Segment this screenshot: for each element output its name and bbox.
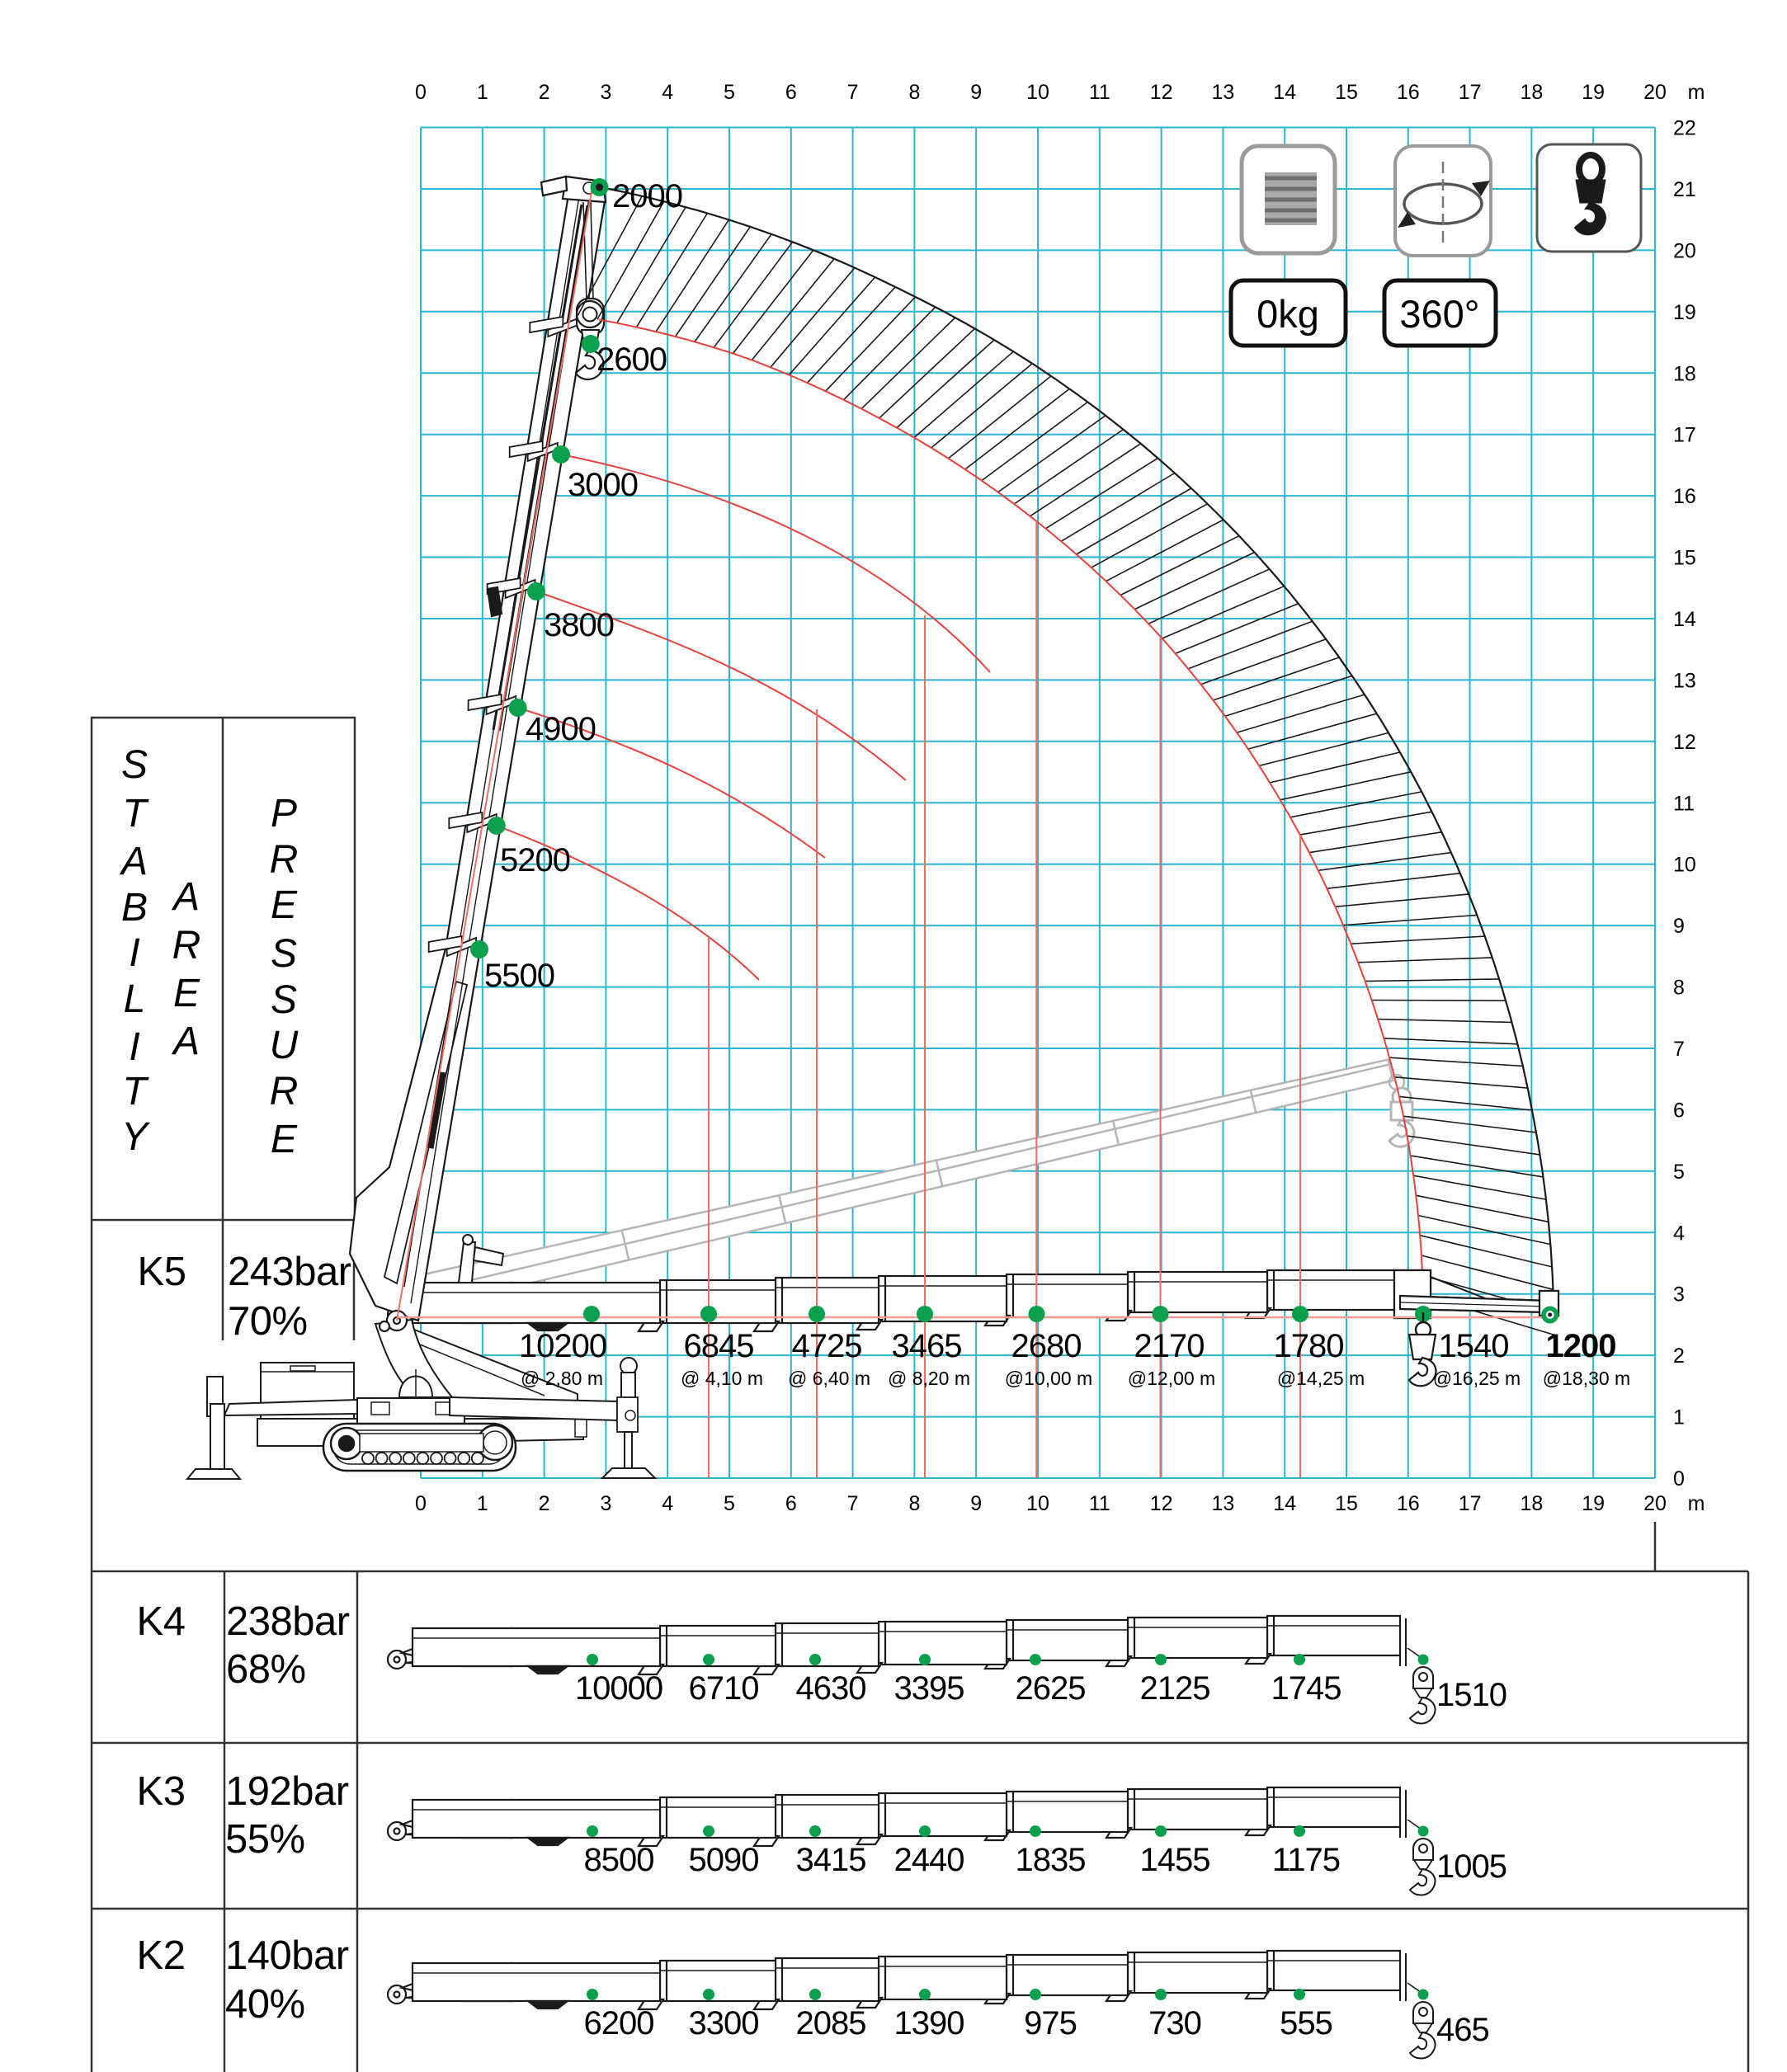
svg-text:4725: 4725 — [792, 1328, 862, 1364]
svg-text:0kg: 0kg — [1257, 292, 1319, 336]
svg-text:P: P — [271, 792, 297, 836]
svg-text:1390: 1390 — [894, 2005, 964, 2041]
svg-text:1: 1 — [1673, 1406, 1685, 1429]
svg-text:3800: 3800 — [544, 607, 614, 643]
svg-text:12: 12 — [1150, 81, 1173, 104]
svg-text:19: 19 — [1673, 301, 1696, 324]
svg-text:1: 1 — [477, 1492, 488, 1515]
svg-text:555: 555 — [1280, 2005, 1332, 2041]
svg-text:S: S — [271, 932, 297, 976]
svg-text:E: E — [271, 883, 298, 927]
svg-text:20: 20 — [1643, 1492, 1667, 1515]
svg-text:13: 13 — [1211, 81, 1234, 104]
svg-text:2600: 2600 — [596, 341, 667, 378]
svg-text:5: 5 — [724, 1492, 735, 1515]
svg-text:6: 6 — [1673, 1099, 1685, 1122]
svg-text:1540: 1540 — [1439, 1328, 1509, 1364]
svg-text:16: 16 — [1397, 1492, 1420, 1515]
svg-text:9: 9 — [1673, 915, 1685, 938]
svg-text:11: 11 — [1673, 792, 1695, 815]
svg-text:17: 17 — [1459, 81, 1482, 104]
svg-text:5500: 5500 — [484, 958, 554, 994]
svg-text:@14,25 m: @14,25 m — [1277, 1368, 1365, 1389]
svg-text:U: U — [270, 1024, 299, 1067]
svg-text:A: A — [171, 1020, 200, 1063]
svg-text:I: I — [129, 1025, 139, 1069]
svg-text:E: E — [271, 1118, 298, 1161]
svg-text:@ 2,80 m: @ 2,80 m — [521, 1368, 603, 1389]
svg-text:19: 19 — [1582, 1492, 1605, 1515]
svg-text:K5: K5 — [138, 1250, 186, 1294]
svg-text:15: 15 — [1673, 547, 1696, 570]
svg-text:7: 7 — [1673, 1038, 1685, 1061]
svg-text:4: 4 — [1673, 1222, 1685, 1245]
svg-text:12: 12 — [1150, 1492, 1173, 1515]
svg-text:3: 3 — [1673, 1283, 1685, 1307]
svg-text:238bar: 238bar — [226, 1599, 350, 1644]
svg-text:8: 8 — [1673, 977, 1685, 1000]
svg-text:15: 15 — [1335, 1492, 1358, 1515]
svg-text:6845: 6845 — [684, 1328, 754, 1364]
svg-text:E: E — [173, 972, 200, 1015]
svg-text:12: 12 — [1673, 731, 1696, 754]
svg-text:5090: 5090 — [689, 1842, 759, 1878]
svg-text:10200: 10200 — [519, 1328, 606, 1364]
svg-text:243bar: 243bar — [228, 1250, 351, 1294]
svg-text:6200: 6200 — [584, 2005, 654, 2041]
svg-text:@ 8,20 m: @ 8,20 m — [888, 1368, 970, 1389]
svg-text:1835: 1835 — [1016, 1842, 1086, 1878]
svg-text:S: S — [271, 978, 297, 1022]
svg-text:0: 0 — [415, 81, 427, 104]
svg-text:1510: 1510 — [1436, 1677, 1506, 1713]
svg-text:L: L — [124, 977, 146, 1021]
svg-text:13: 13 — [1673, 669, 1696, 692]
svg-text:m: m — [1688, 81, 1705, 104]
svg-text:4: 4 — [662, 81, 673, 104]
svg-text:@18,30 m: @18,30 m — [1543, 1368, 1630, 1389]
svg-text:2625: 2625 — [1016, 1670, 1086, 1707]
svg-text:A: A — [119, 840, 148, 883]
svg-text:8500: 8500 — [584, 1842, 654, 1878]
svg-text:4: 4 — [662, 1492, 673, 1515]
svg-text:55%: 55% — [225, 1817, 305, 1862]
svg-text:13: 13 — [1211, 1492, 1234, 1515]
svg-text:2125: 2125 — [1140, 1670, 1210, 1707]
svg-text:16: 16 — [1397, 81, 1420, 104]
svg-text:3465: 3465 — [892, 1328, 962, 1364]
svg-text:10: 10 — [1673, 854, 1696, 877]
svg-text:K4: K4 — [137, 1599, 186, 1644]
svg-text:1780: 1780 — [1274, 1328, 1344, 1364]
svg-text:4900: 4900 — [526, 711, 596, 747]
svg-text:8: 8 — [908, 1492, 920, 1515]
svg-text:10: 10 — [1026, 81, 1049, 104]
svg-text:22: 22 — [1673, 117, 1696, 140]
svg-text:R: R — [270, 1070, 299, 1114]
svg-text:2000: 2000 — [612, 178, 682, 214]
svg-text:730: 730 — [1148, 2005, 1201, 2041]
svg-text:5: 5 — [1673, 1161, 1685, 1184]
svg-text:3000: 3000 — [568, 467, 638, 503]
svg-text:15: 15 — [1335, 81, 1358, 104]
svg-text:2: 2 — [539, 81, 550, 104]
svg-text:3415: 3415 — [796, 1842, 866, 1878]
svg-text:R: R — [172, 924, 201, 968]
svg-text:1455: 1455 — [1140, 1842, 1210, 1878]
svg-text:I: I — [129, 931, 139, 975]
svg-text:3: 3 — [600, 81, 611, 104]
svg-text:7: 7 — [847, 1492, 859, 1515]
svg-text:A: A — [171, 875, 200, 919]
svg-text:3: 3 — [600, 1492, 611, 1515]
svg-text:18: 18 — [1520, 81, 1543, 104]
svg-text:2: 2 — [539, 1492, 550, 1515]
svg-text:20: 20 — [1673, 239, 1696, 262]
svg-text:9: 9 — [970, 81, 982, 104]
svg-text:m: m — [1688, 1492, 1705, 1515]
svg-text:11: 11 — [1089, 81, 1110, 104]
svg-text:975: 975 — [1024, 2005, 1077, 2041]
svg-text:Y: Y — [121, 1115, 150, 1159]
svg-text:2680: 2680 — [1011, 1328, 1082, 1364]
svg-text:1175: 1175 — [1272, 1842, 1340, 1878]
svg-text:S: S — [121, 743, 148, 787]
svg-text:6710: 6710 — [689, 1670, 759, 1707]
svg-text:3395: 3395 — [894, 1670, 964, 1707]
svg-text:1200: 1200 — [1546, 1328, 1616, 1364]
svg-text:@12,00 m: @12,00 m — [1128, 1368, 1215, 1389]
svg-text:7: 7 — [847, 81, 859, 104]
svg-text:18: 18 — [1673, 362, 1696, 385]
svg-text:14: 14 — [1273, 1492, 1296, 1515]
svg-text:1005: 1005 — [1436, 1848, 1506, 1885]
svg-text:R: R — [270, 838, 299, 882]
svg-text:17: 17 — [1673, 424, 1696, 447]
svg-text:9: 9 — [970, 1492, 982, 1515]
svg-text:20: 20 — [1643, 81, 1667, 104]
svg-text:16: 16 — [1673, 485, 1696, 508]
svg-text:40%: 40% — [225, 1982, 305, 2027]
svg-text:18: 18 — [1520, 1492, 1543, 1515]
svg-text:0: 0 — [1673, 1467, 1685, 1490]
svg-text:T: T — [122, 1070, 149, 1114]
svg-text:1745: 1745 — [1271, 1670, 1341, 1707]
svg-text:B: B — [121, 886, 148, 930]
svg-text:K3: K3 — [137, 1769, 186, 1814]
svg-text:0: 0 — [415, 1492, 427, 1515]
svg-text:T: T — [122, 792, 149, 836]
svg-text:360°: 360° — [1399, 292, 1479, 336]
svg-text:@16,25 m: @16,25 m — [1433, 1368, 1521, 1389]
svg-text:6: 6 — [785, 81, 797, 104]
svg-text:8: 8 — [908, 81, 920, 104]
svg-text:K2: K2 — [137, 1933, 186, 1978]
svg-text:@ 6,40 m: @ 6,40 m — [788, 1368, 870, 1389]
svg-text:14: 14 — [1673, 608, 1696, 631]
svg-text:11: 11 — [1089, 1492, 1110, 1515]
svg-text:10: 10 — [1026, 1492, 1049, 1515]
svg-text:19: 19 — [1582, 81, 1605, 104]
svg-text:5: 5 — [724, 81, 735, 104]
svg-text:192bar: 192bar — [225, 1769, 349, 1814]
svg-text:5200: 5200 — [500, 842, 570, 878]
svg-text:@ 4,10 m: @ 4,10 m — [681, 1368, 763, 1389]
svg-text:6: 6 — [785, 1492, 797, 1515]
svg-text:1: 1 — [477, 81, 488, 104]
svg-text:4630: 4630 — [796, 1670, 866, 1707]
svg-text:2085: 2085 — [796, 2005, 866, 2041]
svg-text:21: 21 — [1673, 178, 1696, 201]
svg-text:2170: 2170 — [1134, 1328, 1205, 1364]
svg-text:70%: 70% — [228, 1299, 308, 1344]
svg-text:17: 17 — [1459, 1492, 1482, 1515]
svg-text:14: 14 — [1273, 81, 1296, 104]
svg-text:2: 2 — [1673, 1344, 1685, 1368]
svg-text:465: 465 — [1436, 2012, 1489, 2048]
svg-text:@10,00 m: @10,00 m — [1005, 1368, 1092, 1389]
svg-text:2440: 2440 — [894, 1842, 964, 1878]
svg-text:140bar: 140bar — [225, 1933, 349, 1978]
svg-text:3300: 3300 — [689, 2005, 759, 2041]
svg-text:68%: 68% — [226, 1647, 306, 1692]
svg-text:10000: 10000 — [575, 1670, 662, 1707]
